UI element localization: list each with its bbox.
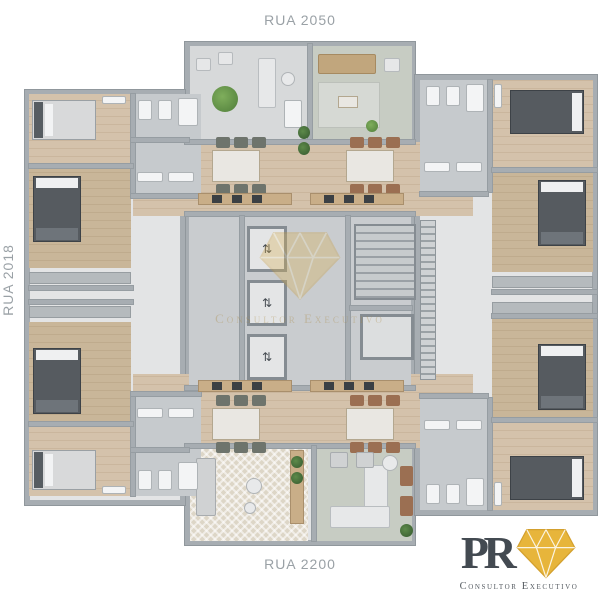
chair bbox=[234, 137, 248, 148]
wall bbox=[488, 80, 492, 192]
wall bbox=[185, 212, 415, 216]
chair bbox=[400, 496, 413, 516]
chair bbox=[386, 137, 400, 148]
armchair bbox=[384, 58, 400, 72]
bed bbox=[32, 100, 96, 140]
bed bbox=[510, 90, 584, 134]
chair bbox=[386, 395, 400, 406]
wall bbox=[492, 290, 597, 294]
chair bbox=[252, 137, 266, 148]
armchair bbox=[218, 52, 233, 65]
wall bbox=[131, 392, 135, 496]
bathroom-fixture bbox=[102, 486, 126, 494]
appliance bbox=[212, 382, 222, 390]
chair bbox=[216, 137, 230, 148]
bathroom-fixture bbox=[494, 482, 502, 506]
bathroom-fixture bbox=[424, 162, 450, 172]
bathroom-fixture bbox=[137, 408, 163, 418]
dining-table bbox=[346, 408, 394, 440]
bathroom-fixture bbox=[466, 478, 484, 506]
bathroom-fixture bbox=[138, 470, 152, 490]
bathroom-fixture bbox=[456, 420, 482, 430]
shaft bbox=[360, 314, 414, 360]
wall bbox=[29, 164, 133, 168]
wall bbox=[420, 394, 488, 398]
wardrobe bbox=[492, 302, 593, 314]
bathroom-fixture bbox=[102, 96, 126, 104]
bed bbox=[510, 456, 584, 500]
staircase bbox=[354, 224, 416, 300]
bathroom-fixture bbox=[494, 84, 502, 108]
bathroom-fixture bbox=[284, 100, 302, 128]
bathroom-fixture bbox=[456, 162, 482, 172]
appliance bbox=[344, 382, 354, 390]
sofa bbox=[356, 452, 374, 468]
side-table bbox=[281, 72, 295, 86]
bathroom-fixture bbox=[168, 172, 194, 182]
armchair bbox=[196, 58, 211, 71]
elevator: ⇅ bbox=[247, 280, 287, 326]
plant bbox=[366, 120, 378, 132]
sofa bbox=[258, 58, 276, 108]
bathroom-fixture bbox=[446, 86, 460, 106]
appliance bbox=[232, 382, 242, 390]
side-table bbox=[244, 502, 256, 514]
wardrobe bbox=[492, 276, 593, 288]
chair bbox=[216, 395, 230, 406]
appliance bbox=[344, 195, 354, 203]
chair bbox=[234, 442, 248, 453]
chair bbox=[252, 442, 266, 453]
bathroom-fixture bbox=[426, 86, 440, 106]
wall bbox=[346, 216, 350, 386]
chair bbox=[368, 395, 382, 406]
sofa bbox=[330, 506, 390, 528]
dining-table bbox=[212, 408, 260, 440]
wall bbox=[492, 418, 597, 422]
company-logo: PR Consultor Executivo bbox=[444, 526, 594, 592]
wall bbox=[29, 286, 133, 290]
appliance bbox=[364, 195, 374, 203]
wall bbox=[131, 94, 135, 198]
sofa bbox=[196, 458, 216, 516]
plant bbox=[298, 126, 310, 139]
chair bbox=[234, 395, 248, 406]
chair bbox=[216, 442, 230, 453]
appliance bbox=[252, 195, 262, 203]
bed bbox=[538, 180, 586, 246]
chair bbox=[350, 137, 364, 148]
logo-tagline: Consultor Executivo bbox=[444, 581, 594, 592]
logo-monogram: PR bbox=[461, 532, 511, 573]
bathroom-fixture bbox=[178, 462, 198, 490]
bathroom-fixture bbox=[424, 420, 450, 430]
appliance bbox=[212, 195, 222, 203]
bathroom-fixture bbox=[178, 98, 198, 126]
chair bbox=[368, 137, 382, 148]
side-table bbox=[382, 455, 398, 471]
sofa bbox=[318, 54, 376, 74]
dining-table bbox=[212, 150, 260, 182]
wall bbox=[488, 398, 492, 510]
wardrobe bbox=[29, 306, 131, 318]
wall bbox=[29, 300, 133, 304]
wall bbox=[492, 314, 597, 318]
chair bbox=[350, 395, 364, 406]
plant bbox=[212, 86, 238, 112]
chair bbox=[400, 466, 413, 486]
appliance bbox=[324, 382, 334, 390]
appliance bbox=[252, 382, 262, 390]
floor-plan: ⇅⇅⇅ bbox=[0, 0, 600, 600]
chair bbox=[386, 442, 400, 453]
bed bbox=[33, 176, 81, 242]
dining-table bbox=[346, 150, 394, 182]
elevator: ⇅ bbox=[247, 226, 287, 272]
wardrobe bbox=[29, 272, 131, 284]
wall bbox=[308, 44, 312, 142]
wall bbox=[492, 168, 597, 172]
wall bbox=[350, 306, 412, 310]
appliance bbox=[324, 195, 334, 203]
wall bbox=[420, 192, 488, 196]
wall bbox=[29, 422, 133, 426]
bathroom-fixture bbox=[446, 484, 460, 504]
appliance bbox=[364, 382, 374, 390]
wall bbox=[312, 446, 316, 541]
bed bbox=[538, 344, 586, 410]
bed bbox=[32, 450, 96, 490]
wall bbox=[131, 194, 201, 198]
utility-shaft bbox=[420, 220, 436, 380]
elevator: ⇅ bbox=[247, 334, 287, 380]
wall bbox=[131, 138, 189, 142]
wall bbox=[131, 448, 189, 452]
bathroom-fixture bbox=[137, 172, 163, 182]
dining-table bbox=[338, 96, 358, 108]
logo-diamond-icon bbox=[515, 526, 577, 580]
bathroom-fixture bbox=[168, 408, 194, 418]
plant bbox=[298, 142, 310, 155]
wall bbox=[240, 216, 244, 386]
plant bbox=[400, 524, 413, 537]
bathroom-fixture bbox=[426, 484, 440, 504]
wall bbox=[131, 392, 201, 396]
floorplan-image: RUA 2050 RUA 2018 ⇅⇅⇅ Consultor Executiv… bbox=[0, 0, 600, 600]
side-table bbox=[246, 478, 262, 494]
sofa bbox=[330, 452, 348, 468]
plant bbox=[291, 456, 303, 468]
bathroom-fixture bbox=[466, 84, 484, 112]
bathroom-fixture bbox=[158, 470, 172, 490]
bathroom-fixture bbox=[138, 100, 152, 120]
bathroom-fixture bbox=[158, 100, 172, 120]
bed bbox=[33, 348, 81, 414]
chair bbox=[252, 395, 266, 406]
plant bbox=[291, 472, 303, 484]
appliance bbox=[232, 195, 242, 203]
